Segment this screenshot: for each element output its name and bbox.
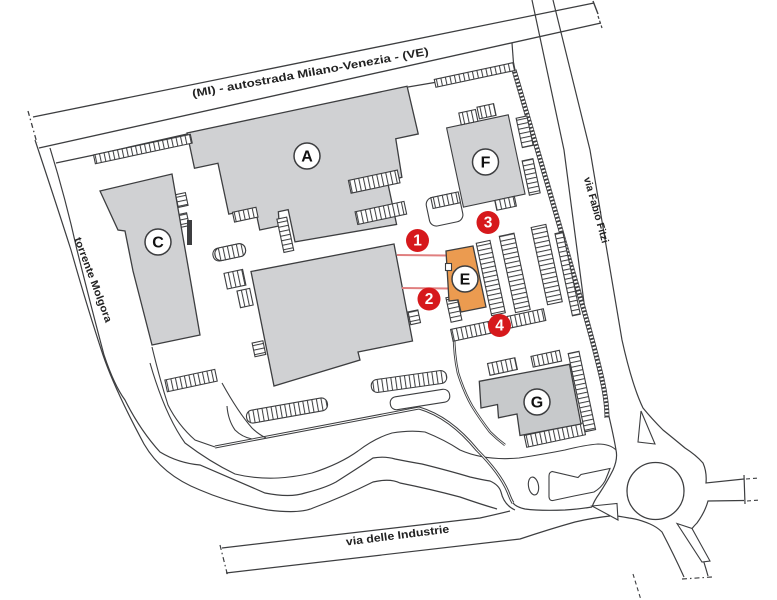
svg-text:3: 3 [484, 215, 493, 232]
svg-text:2: 2 [425, 291, 434, 308]
svg-text:F: F [481, 155, 491, 172]
svg-text:E: E [460, 272, 471, 289]
svg-text:G: G [531, 395, 543, 412]
svg-text:4: 4 [495, 318, 504, 335]
svg-text:1: 1 [413, 233, 422, 250]
svg-text:A: A [301, 149, 313, 166]
svg-text:C: C [152, 235, 164, 252]
